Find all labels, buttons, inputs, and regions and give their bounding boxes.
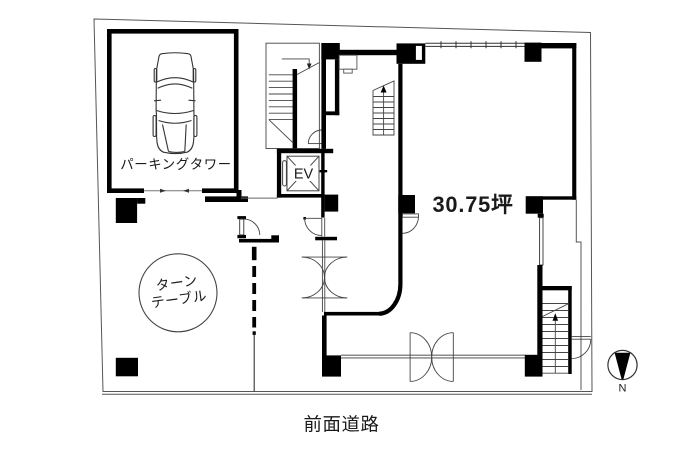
svg-text:パーキングタワー: パーキングタワー — [120, 157, 232, 172]
svg-text:EV: EV — [294, 167, 314, 183]
svg-text:N: N — [619, 383, 627, 395]
svg-text:30.75坪: 30.75坪 — [433, 192, 514, 217]
svg-text:前面道路: 前面道路 — [304, 414, 380, 435]
